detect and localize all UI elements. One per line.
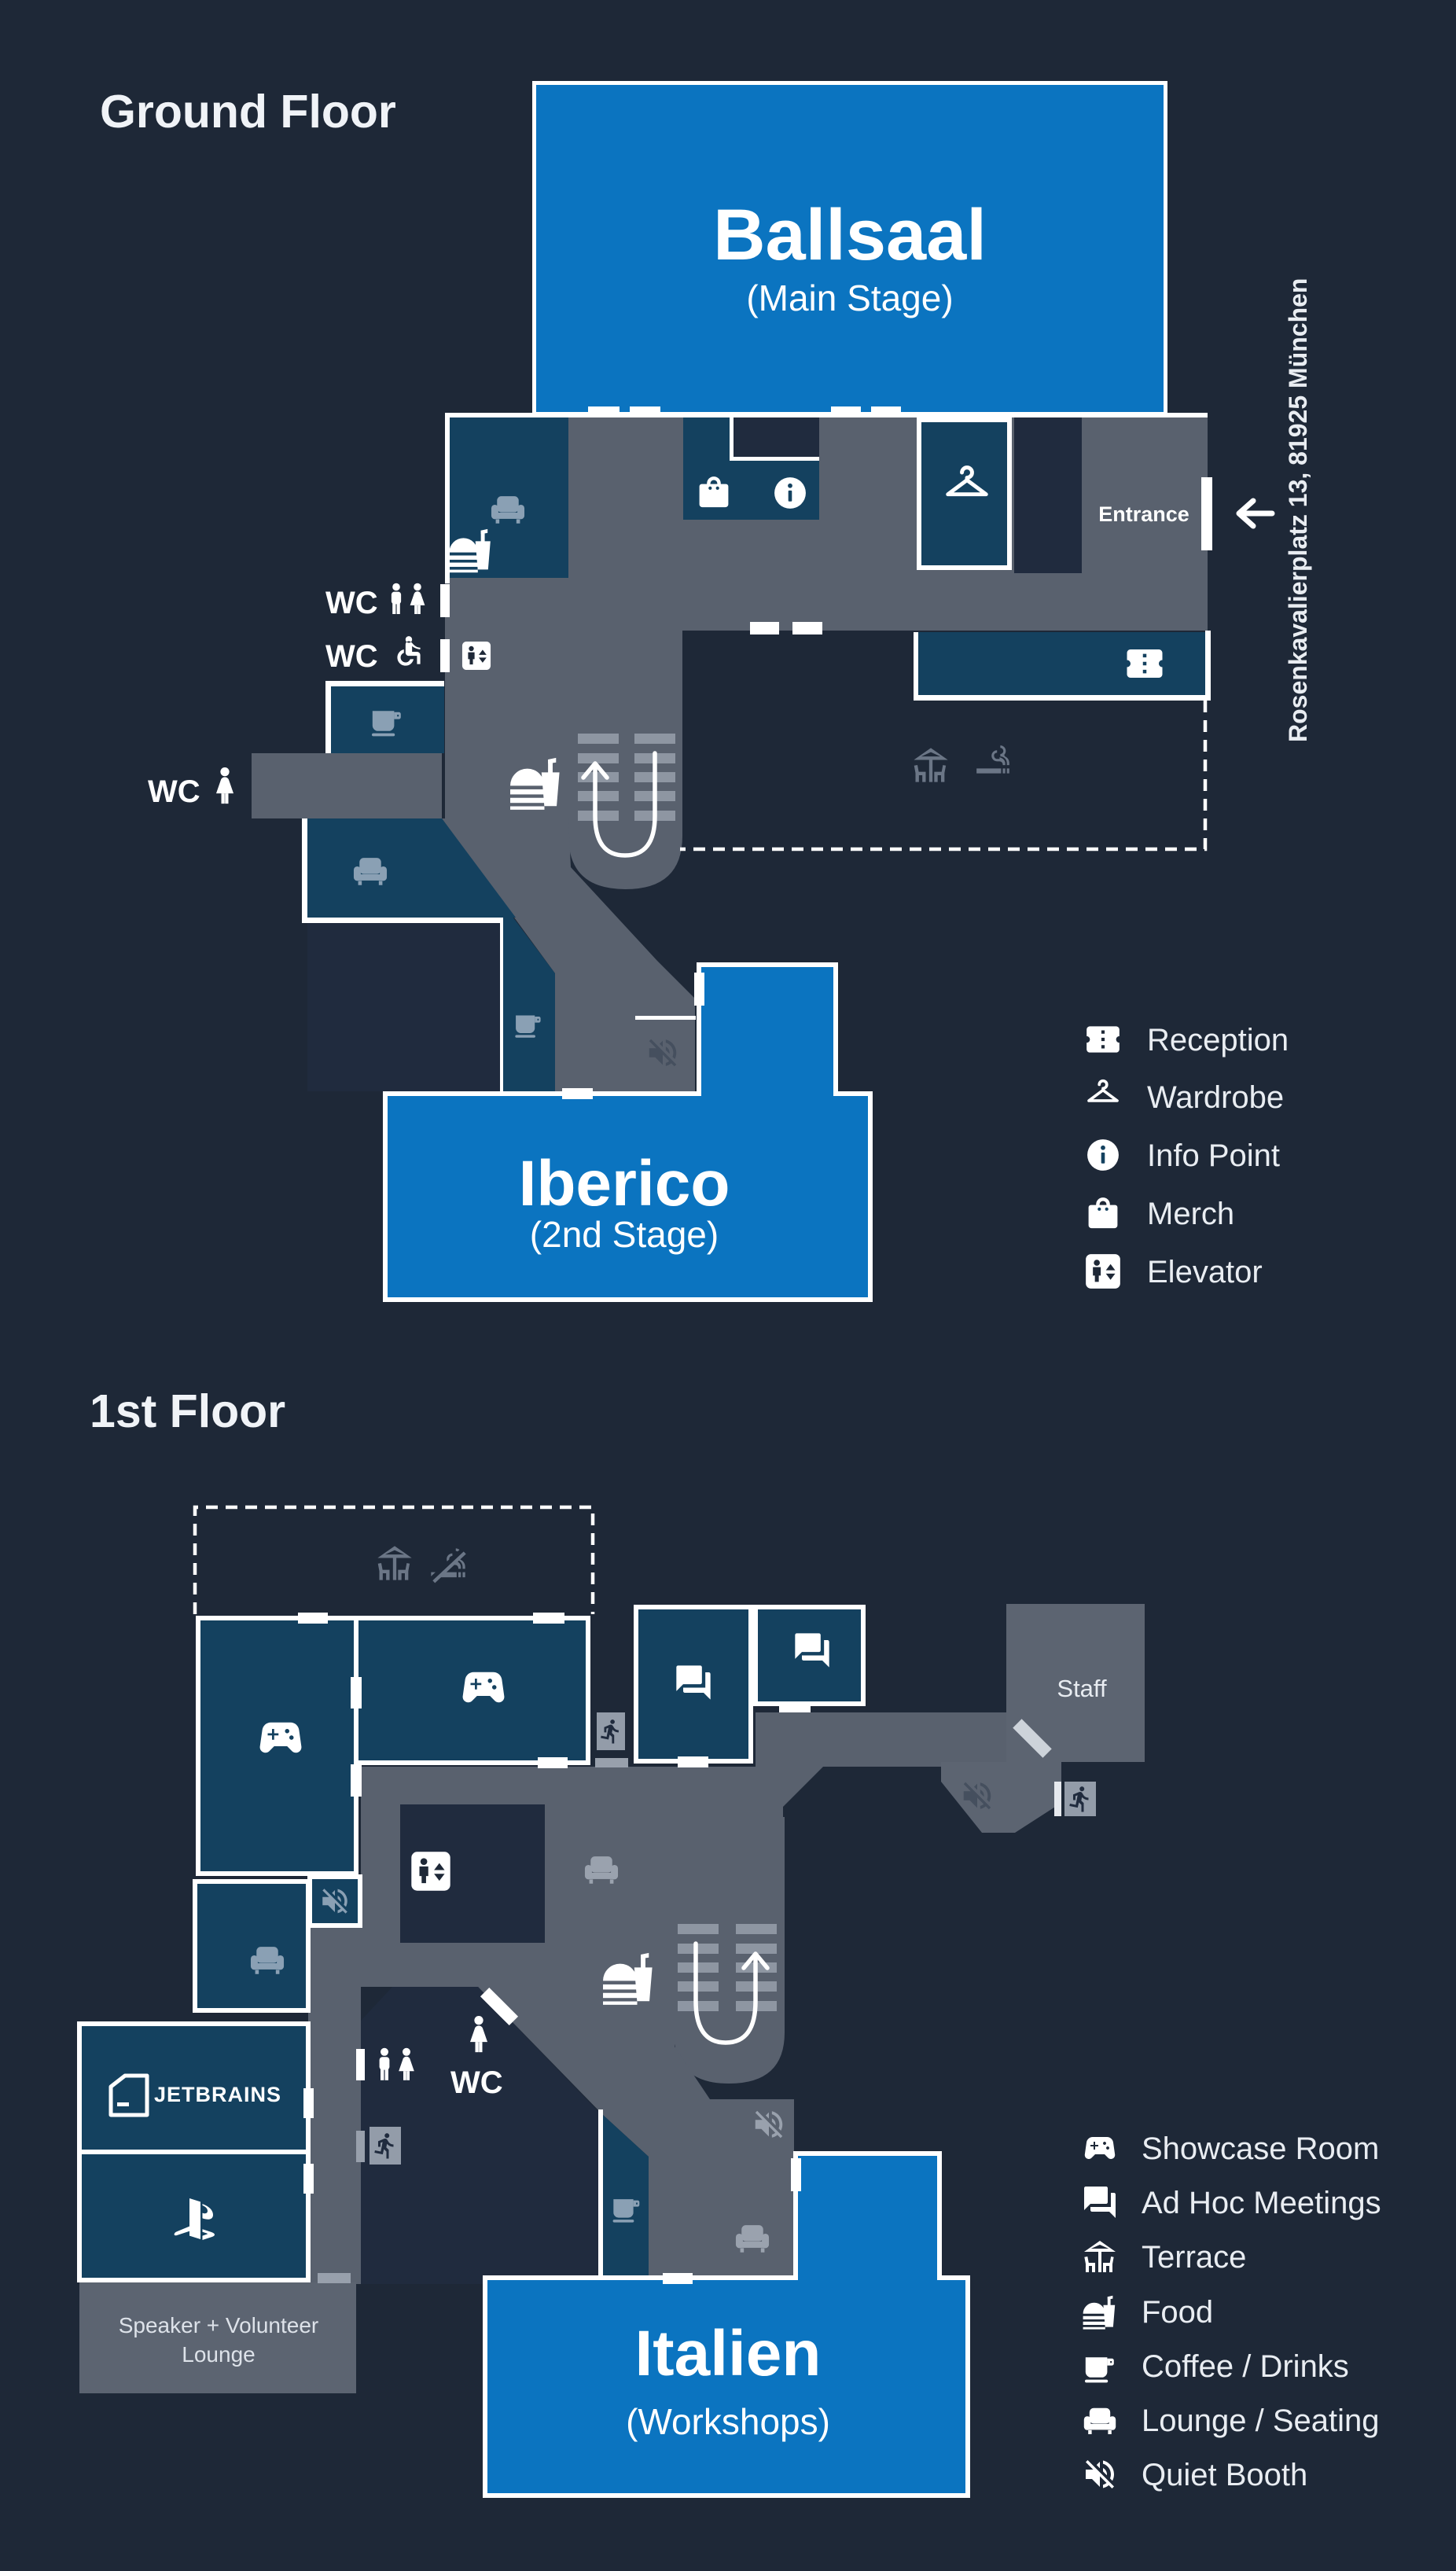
svg-text:Terrace: Terrace	[1142, 2240, 1246, 2275]
svg-text:Ad Hoc Meetings: Ad Hoc Meetings	[1142, 2186, 1381, 2220]
svg-text:(2nd Stage): (2nd Stage)	[530, 1214, 719, 1255]
svg-text:Showcase Room: Showcase Room	[1142, 2131, 1379, 2166]
svg-text:Entrance: Entrance	[1098, 502, 1189, 526]
svg-text:Reception: Reception	[1147, 1023, 1289, 1057]
svg-text:Rosenkavalierplatz 13, 81925 M: Rosenkavalierplatz 13, 81925 München	[1284, 278, 1312, 742]
svg-text:Food: Food	[1142, 2295, 1213, 2330]
svg-text:Speaker + Volunteer: Speaker + Volunteer	[119, 2313, 319, 2337]
svg-text:Lounge / Seating: Lounge / Seating	[1142, 2404, 1379, 2438]
svg-text:WC: WC	[148, 774, 200, 809]
svg-text:JETBRAINS: JETBRAINS	[154, 2083, 281, 2106]
svg-text:Iberico: Iberico	[519, 1148, 730, 1219]
svg-text:Elevator: Elevator	[1147, 1255, 1263, 1289]
svg-text:Wardrobe: Wardrobe	[1147, 1080, 1284, 1115]
svg-text:WC: WC	[450, 2065, 503, 2100]
svg-text:Ground Floor: Ground Floor	[100, 86, 396, 138]
svg-text:(Main Stage): (Main Stage)	[746, 278, 953, 318]
svg-text:Merch: Merch	[1147, 1197, 1234, 1231]
svg-text:Ballsaal: Ballsaal	[713, 195, 987, 275]
svg-text:Italien: Italien	[635, 2318, 822, 2389]
svg-text:Lounge: Lounge	[182, 2342, 255, 2367]
svg-text:WC: WC	[325, 639, 378, 674]
svg-text:Quiet Booth: Quiet Booth	[1142, 2458, 1307, 2492]
svg-text:1st Floor: 1st Floor	[90, 1385, 285, 1437]
svg-text:WC: WC	[325, 586, 378, 620]
svg-text:Info Point: Info Point	[1147, 1138, 1280, 1173]
svg-text:Coffee / Drinks: Coffee / Drinks	[1142, 2349, 1349, 2384]
svg-text:(Workshops): (Workshops)	[626, 2401, 830, 2442]
svg-text:Staff: Staff	[1057, 1675, 1107, 1702]
